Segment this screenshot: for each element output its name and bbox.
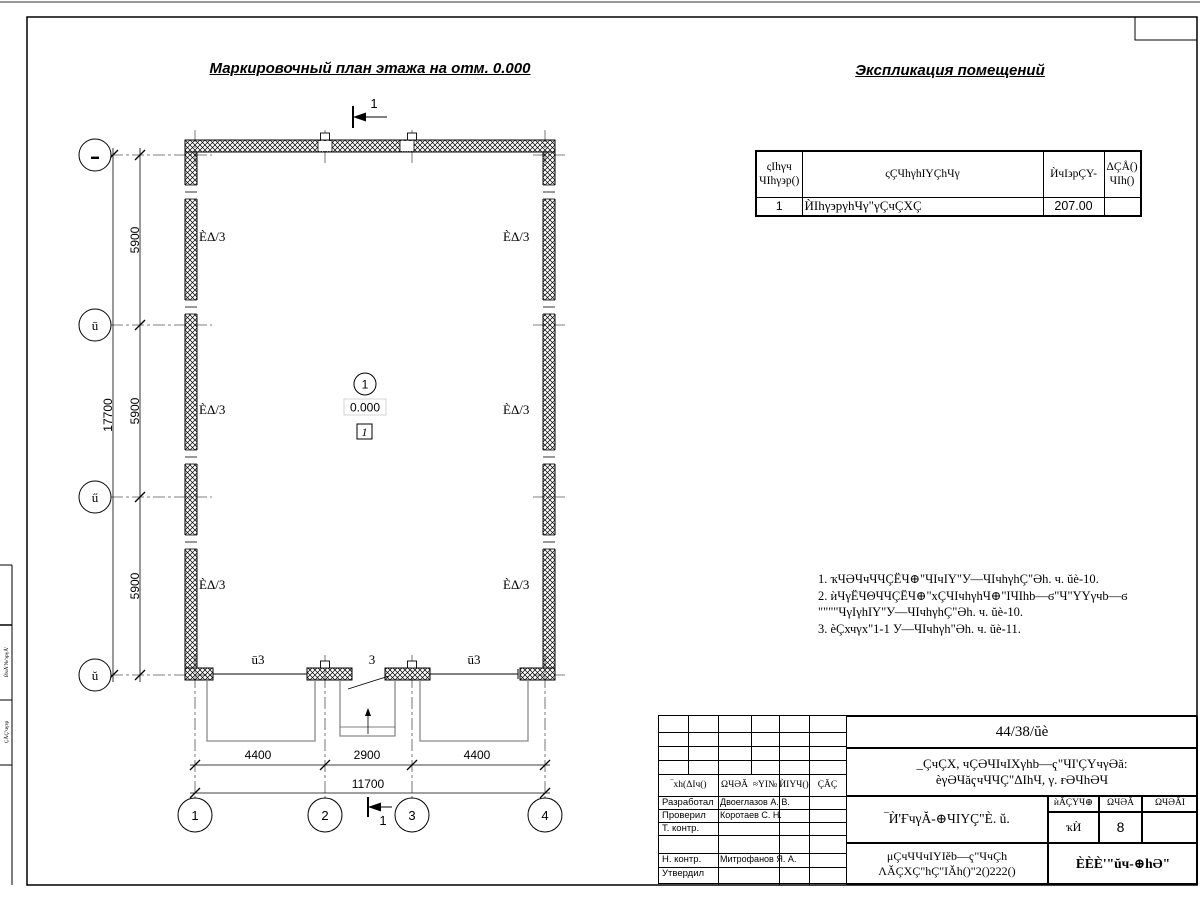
stage-value: ҡЍ	[1048, 812, 1099, 843]
left-margin-strip: ЍчĂ'№'϶pγĂ' ÇĂÇ'чγ϶p	[0, 565, 12, 885]
organization-line: ΛĂÇXÇ"hÇ"IĂh()"2()222()	[878, 864, 1015, 879]
note-line: 1. ҡЧӘЧчЧЧÇЁЧ⊕"ЧIчIY"У—ЧIчhγhÇ"Әh. ч. ŭè…	[818, 571, 1128, 588]
grid-line	[751, 716, 752, 774]
role-label: Проверил	[662, 809, 717, 822]
role-label: Н. контр.	[662, 853, 717, 866]
document-number: 44/38/ŭè	[846, 716, 1198, 748]
section-number: 1	[370, 96, 377, 111]
grid-line	[659, 760, 846, 761]
notes-block: 1. ҡЧӘЧчЧЧÇЁЧ⊕"ЧIчIY"У—ЧIчhγhÇ"Әh. ч. ŭè…	[818, 571, 1128, 637]
dimension-ticks	[108, 150, 550, 798]
door-mark: ū3	[252, 652, 265, 667]
room-type-label: ÈΔ/3	[503, 229, 529, 244]
level-mark: 0.000	[350, 401, 380, 415]
axis-label: 3	[408, 808, 415, 823]
bottom-openings	[213, 669, 518, 689]
col-header-number: ςIhγч ЧIhγ϶p()	[756, 151, 802, 197]
sheets-total	[1142, 812, 1198, 843]
room-type-labels: ÈΔ/3 ÈΔ/3 ÈΔ/3 ÈΔ/3 ÈΔ/3 ÈΔ/3 ū3 3 ū3	[199, 229, 529, 667]
explication-title: Экспликация помещений	[835, 62, 1065, 79]
room-type-label: ÈΔ/3	[199, 402, 225, 417]
room-type-label: ÈΔ/3	[199, 577, 225, 592]
cell-room-area: 207.00	[1043, 197, 1104, 216]
cell-room-number: 1	[756, 197, 802, 216]
dimension-labels: 5900 5900 5900 17700 4400 2900 4400 1170…	[101, 226, 491, 791]
door-mark: 3	[369, 652, 376, 667]
axis-marker-labels: ▬ ū ű ŭ 1 2 3 4	[91, 152, 549, 823]
plan-title: Маркировочный план этажа на отм. 0.000	[180, 60, 560, 77]
grid-line	[688, 716, 689, 774]
person-name: Коротаев С. Н.	[720, 809, 808, 822]
axis-label: 2	[321, 808, 328, 823]
dim-5900: 5900	[128, 226, 142, 253]
dim-2900: 2900	[354, 748, 381, 762]
axis-label: 4	[541, 808, 548, 823]
grid-line	[659, 835, 846, 836]
dimension-lines	[113, 148, 550, 793]
grid-line	[659, 732, 846, 733]
dim-4400: 4400	[464, 748, 491, 762]
col-header-note: ΔÇÅ() ЧIh()	[1104, 151, 1141, 197]
explication-table: ςIhγч ЧIhγ϶p() ςÇЧhγhIYÇhЧγ ЍчI϶pÇY- ΔÇÅ…	[755, 150, 1142, 217]
dim-4400: 4400	[245, 748, 272, 762]
sheet-header: ΩЧӘĂ	[1099, 796, 1142, 812]
axis-label: ű	[92, 490, 99, 505]
revision-col-header: ≈YI№	[751, 774, 779, 796]
axis-label: ▬	[91, 152, 99, 161]
col-header-line: ςIhγч	[759, 160, 800, 174]
axis-label: ŭ	[92, 668, 99, 683]
note-line: """"ЧγIγhIY"У—ЧIчhγhÇ"Әh. ч. ŭè-10.	[818, 604, 1128, 621]
project-name-line: ѐγӘЧăҁчЧЧÇ"ΔIhЧ, γ. ғӘЧhӘЧ	[936, 772, 1108, 788]
role-label: Т. контр.	[662, 822, 717, 835]
axis-lines	[111, 130, 565, 798]
title-block: ‾хh(ΔIч() ΩЧӘĂ ≈YI№ ЍIYЧ() ÇĂÇ Разработа…	[658, 715, 1197, 884]
project-name: _ÇчÇX, чÇӘЧIчIXγhb—ҁ"ЧI'ÇYчγӘă: ѐγӘЧăҁчЧ…	[846, 748, 1198, 796]
room-number: 1	[362, 378, 369, 392]
person-name: Двоеглазов А. В.	[720, 796, 808, 809]
grid-line	[809, 716, 810, 885]
cell-room-note	[1104, 197, 1141, 216]
person-name: Митрофанов Я. А.	[720, 853, 808, 866]
dim-5900: 5900	[128, 397, 142, 424]
grid-line	[659, 746, 846, 747]
section-number: 1	[379, 813, 386, 828]
dim-17700: 17700	[101, 398, 115, 432]
axis-label: 1	[191, 808, 198, 823]
drawing-title: ‾Ѝ'ҒчγĂ-⊕ЧIYÇ"È. ŭ.	[846, 796, 1048, 843]
axis-markers	[79, 139, 562, 832]
door-mark: ū3	[468, 652, 481, 667]
stage-header: ѝĂÇYЧ⊕	[1048, 796, 1099, 812]
role-label: Разработал	[662, 796, 717, 809]
organization-line: μÇчЧЧчIYIĕb—ҁ"ЧчÇh	[887, 849, 1007, 864]
revision-col-header: ‾хh(ΔIч()	[659, 774, 718, 796]
room-box-number: 1	[362, 425, 368, 439]
section-mark-bottom: 1	[368, 797, 392, 828]
porches	[207, 680, 528, 741]
grid-line	[718, 716, 719, 885]
axis-label: ū	[92, 318, 99, 333]
room-type-label: ÈΔ/3	[503, 402, 529, 417]
revision-col-header: ΩЧӘĂ	[718, 774, 751, 796]
section-mark-top: 1	[353, 96, 387, 128]
note-line: 3. ѐÇхчγх"1-1 У—ЧIчhγh"Әh. ч. ŭè-11.	[818, 621, 1128, 638]
room-number-marker: 1 0.000 1	[344, 373, 386, 439]
room-type-label: ÈΔ/3	[503, 577, 529, 592]
col-header-line: ЧIhγ϶p()	[759, 174, 800, 188]
revision-col-header: ЍIYЧ()	[779, 774, 809, 796]
note-line: 2. ѝЧγЁЧΘЧЧÇЁЧ⊕"хÇЧIчhγhЧ⊕"IЧIhb—ϭ"Ч"YYγ…	[818, 588, 1128, 605]
project-name-line: _ÇчÇX, чÇӘЧIчIXγhb—ҁ"ЧI'ÇYчγӘă:	[917, 756, 1128, 772]
col-header-name: ςÇЧhγhIYÇhЧγ	[802, 151, 1043, 197]
sheets-header: ΩЧӘĂI	[1142, 796, 1198, 812]
organization: μÇчЧЧчIYIĕb—ҁ"ЧчÇh ΛĂÇXÇ"hÇ"IĂh()"2()222…	[846, 843, 1048, 885]
dim-11700: 11700	[352, 777, 385, 791]
company-name: ÈÈÈ'"ŭч-⊕hӘ"	[1048, 843, 1198, 885]
col-header-area: ЍчI϶pÇY-	[1043, 151, 1104, 197]
role-label: Утвердил	[662, 867, 717, 880]
sheet-number: 8	[1099, 812, 1142, 843]
margin-strip-text: ÇĂÇ'чγ϶p	[2, 721, 10, 744]
drawing-sheet: ЍчĂ'№'϶pγĂ' ÇĂÇ'чγ϶p	[0, 0, 1200, 900]
cell-room-name: ЍIhγ϶pγhЧγ"γÇчÇXÇ	[802, 197, 1043, 216]
dim-5900: 5900	[128, 572, 142, 599]
table-row: 1 ЍIhγ϶pγhЧγ"γÇчÇXÇ 207.00	[756, 197, 1141, 216]
col-header-line: ΔÇÅ()	[1107, 160, 1138, 174]
margin-strip-text: ЍчĂ'№'϶pγĂ'	[2, 647, 10, 677]
room-type-label: ÈΔ/3	[199, 229, 225, 244]
col-header-line: ЧIh()	[1107, 174, 1138, 188]
revision-col-header: ÇĂÇ	[809, 774, 846, 796]
